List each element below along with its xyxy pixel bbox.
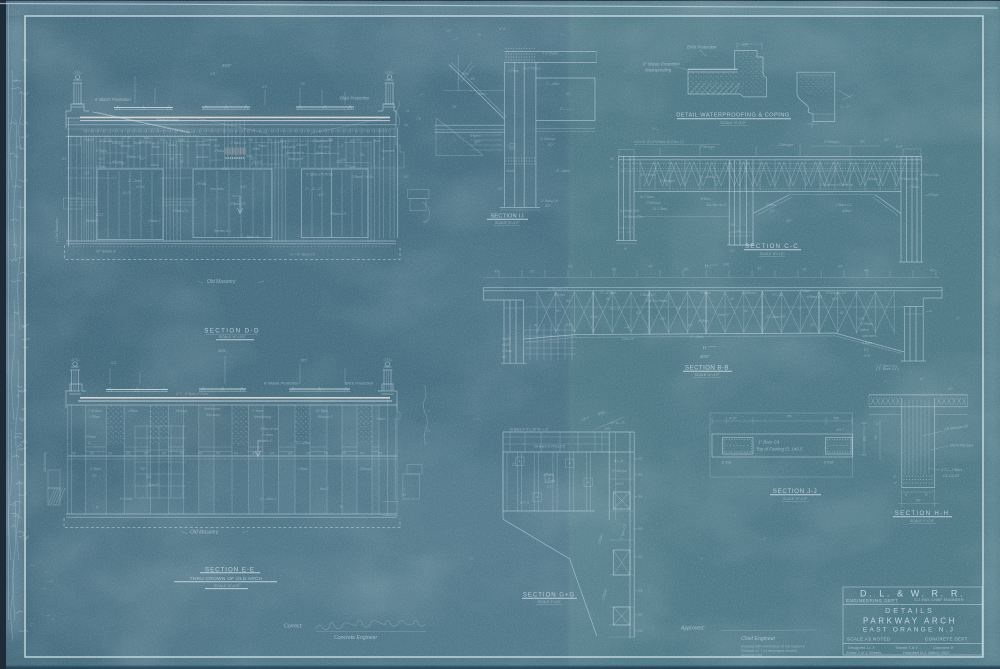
svg-text:2′0″: 2′0″ bbox=[741, 43, 749, 47]
svg-text:thru bolts: thru bolts bbox=[210, 187, 224, 191]
svg-text:6½: 6½ bbox=[470, 77, 475, 81]
svg-text:Sto-Wa-He-4′: Sto-Wa-He-4′ bbox=[706, 203, 727, 207]
svg-text:1″Bars C2: 1″Bars C2 bbox=[640, 293, 655, 297]
svg-text:3′6: 3′6 bbox=[648, 265, 653, 269]
svg-text:thru bolts: thru bolts bbox=[206, 413, 220, 417]
svg-text:EAST ORANGE N.J: EAST ORANGE N.J bbox=[863, 627, 955, 634]
svg-text:6′0: 6′0 bbox=[306, 452, 310, 456]
svg-text:2x: 2x bbox=[405, 109, 410, 113]
svg-text:6′0: 6′0 bbox=[688, 323, 693, 327]
svg-text:5″Bars-C6: 5″Bars-C6 bbox=[330, 212, 346, 216]
svg-text:14′-7 Bars: 14′-7 Bars bbox=[652, 207, 668, 211]
svg-text:Old Masonry: Old Masonry bbox=[207, 279, 236, 285]
svg-text:2′6″dia: 2′6″dia bbox=[195, 182, 206, 186]
svg-text:Spacers: Spacers bbox=[382, 149, 395, 153]
svg-text:6′0: 6′0 bbox=[144, 452, 148, 456]
svg-text:SECTION G+G: SECTION G+G bbox=[523, 593, 575, 599]
svg-text:2″Stirrups-C3: 2″Stirrups-C3 bbox=[825, 291, 846, 295]
svg-text:Brick Protection: Brick Protection bbox=[345, 380, 374, 385]
svg-text:3′6: 3′6 bbox=[802, 268, 807, 272]
svg-text:at 4′0: at 4′0 bbox=[616, 482, 624, 486]
svg-text:1″Bars-C6: 1″Bars-C6 bbox=[172, 209, 188, 213]
svg-text:₤ 6x8 ⃾: ₤ 6x8 ⃾ bbox=[823, 461, 834, 465]
svg-text:4′6: 4′6 bbox=[864, 269, 869, 273]
svg-text:2″Plate: 2″Plate bbox=[507, 69, 519, 73]
svg-text:6′0: 6′0 bbox=[126, 452, 130, 456]
svg-text:8′6: 8′6 bbox=[612, 268, 617, 272]
svg-text:9′0: 9′0 bbox=[757, 267, 762, 271]
svg-text:↓: ↓ bbox=[404, 487, 406, 491]
svg-text:½″Bars: ½″Bars bbox=[698, 319, 709, 323]
svg-text:SCALE ½″=1′0″: SCALE ½″=1′0″ bbox=[219, 335, 246, 339]
svg-text:@6″: @6″ bbox=[474, 140, 481, 144]
svg-text:6′0: 6′0 bbox=[198, 452, 202, 456]
svg-text:5 spcs: 5 spcs bbox=[470, 134, 480, 138]
svg-text:6′0: 6′0 bbox=[502, 355, 507, 359]
svg-text:2′0: 2′0 bbox=[637, 457, 643, 461]
svg-text:1″Bars: 1″Bars bbox=[298, 467, 308, 471]
svg-text:4-1″ Plates: 4-1″ Plates bbox=[524, 67, 541, 71]
svg-text:½: ½ bbox=[624, 247, 627, 251]
svg-text:Stirrups 6″: Stirrups 6″ bbox=[288, 157, 305, 161]
svg-text:½: ½ bbox=[700, 557, 703, 561]
svg-text:1″— Bars: 1″— Bars bbox=[296, 441, 311, 445]
svg-text:6′0: 6′0 bbox=[948, 387, 952, 391]
svg-text:45′6: 45′6 bbox=[218, 348, 226, 353]
svg-text:62: 62 bbox=[566, 299, 570, 303]
svg-text:6′0: 6′0 bbox=[216, 452, 220, 456]
svg-text:1′Bars-C: 1′Bars-C bbox=[148, 219, 162, 223]
svg-text:↓: ↓ bbox=[430, 117, 432, 121]
svg-text:Blast Protection: Blast Protection bbox=[340, 96, 370, 101]
svg-text:C2: C2 bbox=[770, 209, 774, 213]
svg-text:2-6ctrs: 2-6ctrs bbox=[544, 479, 556, 483]
svg-text:¾x: ¾x bbox=[404, 123, 409, 127]
svg-text:1″—1″Bars: 1″—1″Bars bbox=[600, 291, 617, 295]
svg-text:½″ Studs A: ½″ Studs A bbox=[96, 249, 116, 254]
svg-text:G.J. RAY, CHIEF ENGINEER: G.J. RAY, CHIEF ENGINEER bbox=[914, 598, 964, 602]
svg-text:5′6: 5′6 bbox=[638, 589, 643, 593]
svg-text:4′-0″: 4′-0″ bbox=[240, 185, 248, 189]
svg-text:2′6: 2′6 bbox=[451, 105, 457, 109]
svg-text:3′6″: 3′6″ bbox=[140, 467, 146, 471]
svg-text:5′-8″x¾ Plates: 5′-8″x¾ Plates bbox=[646, 299, 668, 303]
svg-text:7″Bars: 7″Bars bbox=[346, 165, 356, 169]
svg-text:60: 60 bbox=[510, 145, 514, 149]
svg-text:4′6: 4′6 bbox=[494, 270, 499, 274]
svg-text:2 7/— 1″Bars: 2 7/— 1″Bars bbox=[940, 468, 962, 472]
svg-text:7′½: 7′½ bbox=[416, 117, 421, 121]
svg-text:—3″: —3″ bbox=[759, 537, 767, 541]
svg-text:4′0″: 4′0″ bbox=[318, 193, 324, 197]
svg-text:3′: 3′ bbox=[382, 157, 385, 161]
svg-text:1″ Bars: 1″ Bars bbox=[252, 409, 263, 413]
svg-text:5′0″: 5′0″ bbox=[250, 157, 256, 161]
svg-text:Correct:: Correct: bbox=[284, 624, 303, 630]
svg-text:H: H bbox=[703, 345, 706, 350]
svg-text:½″Bars C2: ½″Bars C2 bbox=[806, 295, 822, 299]
svg-text:6′0: 6′0 bbox=[360, 452, 364, 456]
svg-text:9′6: 9′6 bbox=[568, 265, 573, 269]
svg-text:2″Stirrups: 2″Stirrups bbox=[645, 201, 661, 205]
svg-text:5 Bars: 5 Bars bbox=[862, 341, 872, 345]
svg-text:5′-0″: 5′-0″ bbox=[222, 167, 230, 171]
svg-text:8′0: 8′0 bbox=[684, 268, 689, 272]
svg-text:2′WX8: 2′WX8 bbox=[83, 138, 94, 142]
svg-text:3′6: 3′6 bbox=[360, 153, 365, 157]
svg-text:Stirrups: Stirrups bbox=[176, 409, 188, 413]
svg-text:½″Stirrups: ½″Stirrups bbox=[612, 469, 627, 473]
svg-text:6′2: 6′2 bbox=[404, 175, 409, 179]
svg-text:1′Bars: 1′Bars bbox=[376, 417, 386, 421]
svg-text:16′: 16′ bbox=[736, 229, 741, 233]
svg-text:7′ Ø Bars: 7′ Ø Bars bbox=[88, 409, 102, 413]
svg-text:6′0: 6′0 bbox=[270, 452, 274, 456]
svg-text:2′0: 2′0 bbox=[497, 187, 503, 191]
svg-text:62: 62 bbox=[730, 297, 734, 301]
svg-text:6′ Blasts Protection: 6′ Blasts Protection bbox=[95, 97, 131, 102]
svg-text:Revised 12-7-31 technique omit: Revised 12-7-31 technique omitted bbox=[741, 649, 798, 653]
svg-text:½″8: ½″8 bbox=[864, 354, 870, 358]
svg-text:6′0: 6′0 bbox=[108, 452, 112, 456]
svg-text:2x: 2x bbox=[426, 429, 431, 433]
svg-text:SCALE 1″=10′: SCALE 1″=10′ bbox=[538, 600, 561, 604]
svg-text:Class: Class bbox=[168, 143, 176, 147]
svg-text:1′6 ¾—⅓: 1′6 ¾—⅓ bbox=[610, 421, 625, 425]
svg-text:SCALE 1″=1′0″: SCALE 1″=1′0″ bbox=[910, 519, 935, 523]
svg-text:6′0: 6′0 bbox=[324, 452, 328, 456]
svg-text:3-1″ Plates: 3-1″ Plates bbox=[542, 52, 559, 56]
svg-text:½″Bars-C2a: ½″Bars-C2a bbox=[624, 215, 642, 219]
svg-text:6x4x1: 6x4x1 bbox=[506, 169, 515, 173]
svg-text:(bars C7): (bars C7) bbox=[316, 151, 330, 155]
svg-text:62: 62 bbox=[840, 311, 844, 315]
svg-text:4′0 ctrs: 4′0 ctrs bbox=[318, 145, 329, 149]
svg-text:x: x bbox=[427, 409, 430, 413]
svg-text:SECTION C-C: SECTION C-C bbox=[745, 243, 799, 250]
svg-text:Bolts: Bolts bbox=[134, 141, 141, 145]
svg-text:2″Stringer: 2″Stringer bbox=[699, 145, 716, 149]
svg-text:Old Masonry: Old Masonry bbox=[43, 452, 47, 473]
svg-text:—½″Bars: —½″Bars bbox=[923, 193, 939, 197]
svg-text:DETAILS: DETAILS bbox=[885, 608, 935, 615]
svg-text:6″ F... 8′ Bars 4′ 2′ctrs: 6″ F... 8′ Bars 4′ 2′ctrs bbox=[176, 392, 209, 396]
svg-text:5′0: 5′0 bbox=[638, 527, 643, 531]
svg-text:6′0: 6′0 bbox=[288, 452, 292, 456]
svg-text:2′6: 2′6 bbox=[915, 499, 922, 503]
svg-text:16′2: 16′2 bbox=[300, 359, 308, 363]
svg-text:15′2″: 15′2″ bbox=[98, 157, 106, 161]
svg-text:a: a bbox=[534, 323, 536, 327]
svg-text:1″Bars: 1″Bars bbox=[128, 409, 138, 413]
svg-text:40′6″: 40′6″ bbox=[700, 354, 710, 359]
svg-text:( 1″ Bars C4 ): ( 1″ Bars C4 ) bbox=[876, 367, 900, 371]
svg-text:Chief Engineer: Chief Engineer bbox=[741, 636, 776, 642]
svg-text:Hoboken N.J. March 1922: Hoboken N.J. March 1922 bbox=[903, 650, 950, 655]
svg-text:6″ Waste Protection: 6″ Waste Protection bbox=[643, 62, 680, 67]
svg-text:2″Stirrups C3: 2″Stirrups C3 bbox=[547, 287, 568, 291]
svg-text:10″—: 10″— bbox=[730, 223, 739, 227]
svg-text:↓: ↓ bbox=[482, 297, 484, 301]
svg-text:3″Bars: 3″Bars bbox=[86, 435, 96, 439]
svg-text:thru C: thru C bbox=[320, 487, 330, 491]
svg-text:¾x8′6: ¾x8′6 bbox=[502, 337, 511, 341]
svg-text:both ends: both ends bbox=[862, 334, 877, 338]
svg-text:½″8: ½″8 bbox=[214, 144, 220, 148]
svg-text:6-1″ Bars: 6-1″ Bars bbox=[640, 195, 654, 199]
svg-text:½″Bars: ½″Bars bbox=[700, 197, 711, 201]
svg-text:1″Bars: 1″Bars bbox=[90, 415, 100, 419]
svg-text:7″8: 7″8 bbox=[328, 138, 333, 142]
svg-text:1″—Bars: 1″—Bars bbox=[546, 82, 560, 86]
svg-text:G: G bbox=[403, 493, 406, 497]
svg-text:4′x3′6: 4′x3′6 bbox=[136, 185, 145, 189]
svg-text:2′0: 2′0 bbox=[169, 157, 175, 161]
svg-text:C1-C2-C3: C1-C2-C3 bbox=[943, 474, 959, 478]
svg-text:Anchors: Anchors bbox=[195, 155, 209, 159]
svg-text:SCALE AS NOTED: SCALE AS NOTED bbox=[847, 637, 890, 642]
svg-text:1″—: 1″— bbox=[560, 33, 567, 37]
svg-text:Bars: Bars bbox=[144, 136, 151, 140]
svg-text:6′2: 6′2 bbox=[864, 348, 869, 352]
svg-text:SECTION B-B: SECTION B-B bbox=[685, 365, 729, 372]
svg-text:4′-3″: 4′-3″ bbox=[729, 417, 737, 421]
svg-text:SECTION H-H: SECTION H-H bbox=[895, 510, 950, 517]
svg-text:6′ Waste Protection: 6′ Waste Protection bbox=[264, 380, 299, 385]
svg-text:¾: ¾ bbox=[186, 144, 189, 148]
svg-text:¾: ¾ bbox=[876, 422, 879, 426]
svg-text:Class B: Class B bbox=[296, 143, 308, 147]
svg-text:3′0: 3′0 bbox=[638, 473, 643, 477]
svg-text:Revised 1/30: Revised 1/30 bbox=[741, 654, 762, 658]
svg-text:Milled: Milled bbox=[860, 328, 869, 332]
svg-text:1″Bars-C2: 1″Bars-C2 bbox=[836, 203, 852, 207]
svg-text:5′Bars 4′ctrs: 5′Bars 4′ctrs bbox=[260, 427, 279, 431]
svg-text:1″—Bars C: 1″—Bars C bbox=[260, 497, 277, 501]
svg-text:DETAIL WATERPROOFING & COPING: DETAIL WATERPROOFING & COPING bbox=[676, 113, 790, 119]
svg-text:—A: —A bbox=[117, 162, 123, 166]
svg-text:1″Stirrups: 1″Stirrups bbox=[824, 140, 839, 144]
svg-text:(dry wall): (dry wall) bbox=[282, 145, 296, 149]
svg-text:1″—7″: 1″—7″ bbox=[840, 105, 850, 109]
svg-text:6′0: 6′0 bbox=[342, 452, 346, 456]
svg-text:4′0″: 4′0″ bbox=[786, 219, 792, 223]
svg-text:2′0: 2′0 bbox=[729, 249, 735, 253]
svg-text:½″—62: ½″—62 bbox=[772, 293, 783, 297]
svg-text:⅓″ Bars: ⅓″ Bars bbox=[316, 409, 328, 413]
svg-text:C7: C7 bbox=[547, 485, 551, 489]
svg-text:ENGINEERING DEPT: ENGINEERING DEPT bbox=[846, 598, 898, 603]
svg-text:4′—0: 4′—0 bbox=[614, 458, 624, 463]
svg-text:6′0: 6′0 bbox=[180, 452, 184, 456]
svg-text:¾″ 6′: ¾″ 6′ bbox=[498, 27, 506, 31]
svg-text:5′0: 5′0 bbox=[638, 555, 643, 559]
svg-text:1″ Bars C4: 1″ Bars C4 bbox=[230, 141, 246, 145]
svg-text:—A: —A bbox=[925, 309, 932, 313]
svg-text:Web ½″: Web ½″ bbox=[718, 313, 731, 317]
svg-text:1″ Bars-C4: 1″ Bars-C4 bbox=[758, 440, 780, 445]
svg-text:60: 60 bbox=[610, 157, 614, 161]
svg-text:SCALE 3″=1′0″: SCALE 3″=1′0″ bbox=[720, 121, 746, 125]
svg-text:2″ Bars: 2″ Bars bbox=[95, 149, 107, 153]
svg-text:Rivets: Rivets bbox=[258, 144, 267, 148]
svg-text:Ø½ 7: Ø½ 7 bbox=[835, 428, 844, 432]
svg-text:½″8: ½″8 bbox=[858, 317, 864, 321]
svg-text:Anchored to: Anchored to bbox=[285, 151, 304, 155]
svg-text:Crib-C4: Crib-C4 bbox=[622, 337, 634, 341]
svg-text:Class: Class bbox=[150, 163, 159, 167]
svg-text:2″Bars: 2″Bars bbox=[213, 149, 224, 153]
svg-text:½″8: ½″8 bbox=[340, 158, 346, 162]
svg-text:ƒ Old Masonry: ƒ Old Masonry bbox=[55, 217, 59, 243]
svg-text:½ Studs: ½ Studs bbox=[120, 497, 133, 501]
svg-text:4″—Bars: 4″—Bars bbox=[556, 169, 570, 173]
svg-text:½: ½ bbox=[152, 142, 155, 146]
svg-text:6′2″: 6′2″ bbox=[140, 157, 146, 161]
svg-text:SCALE ½″=1′0″: SCALE ½″=1′0″ bbox=[782, 497, 808, 501]
svg-text:⅓: ⅓ bbox=[78, 192, 81, 196]
svg-text:2′6″: 2′6″ bbox=[445, 29, 452, 33]
svg-text:¾″Plates: ¾″Plates bbox=[860, 322, 874, 326]
svg-text:1″Bars: 1″Bars bbox=[476, 92, 486, 96]
svg-text:SECTION D-D: SECTION D-D bbox=[204, 328, 260, 335]
svg-text:4′6″: 4′6″ bbox=[566, 323, 572, 327]
svg-text:↓: ↓ bbox=[652, 577, 654, 581]
svg-text:4′0: 4′0 bbox=[884, 138, 889, 142]
svg-text:8″Bars-C6: 8″Bars-C6 bbox=[230, 202, 246, 206]
svg-text:6′0″: 6′0″ bbox=[548, 143, 554, 147]
svg-text:4′Bars: 4′Bars bbox=[842, 209, 852, 213]
svg-text:62: 62 bbox=[606, 297, 610, 301]
svg-text:↓: ↓ bbox=[606, 119, 608, 123]
svg-text:62: 62 bbox=[636, 311, 640, 315]
svg-text:—: — bbox=[939, 557, 944, 561]
svg-text:2″Stirrups: 2″Stirrups bbox=[741, 291, 757, 295]
svg-text:Stirrups C: Stirrups C bbox=[318, 415, 334, 419]
svg-text:6′0 ctrs: 6′0 ctrs bbox=[554, 293, 565, 297]
svg-text:2″———: 2″——— bbox=[559, 107, 574, 111]
svg-text:1′6: 1′6 bbox=[810, 323, 815, 327]
svg-text:8′-0″: 8′-0″ bbox=[896, 145, 904, 149]
svg-text:Waterproofing: Waterproofing bbox=[645, 68, 672, 73]
svg-text:6′0: 6′0 bbox=[378, 452, 382, 456]
svg-text:Slab 8″: Slab 8″ bbox=[148, 483, 160, 487]
svg-text:3″Bars C-6 4′c: 3″Bars C-6 4′c bbox=[352, 175, 374, 179]
svg-text:1″—Bars: 1″—Bars bbox=[690, 335, 704, 339]
svg-text:⅓′: ⅓′ bbox=[798, 307, 802, 311]
svg-text:⅓: ⅓ bbox=[610, 165, 613, 169]
svg-text:5′0: 5′0 bbox=[556, 309, 561, 313]
svg-text:16 Bars 5′-6 x 10′-6 — C: 16 Bars 5′-6 x 10′-6 — C bbox=[509, 428, 549, 432]
svg-text:3″ Bars-C6 4′ctrs: 3″ Bars-C6 4′ctrs bbox=[306, 173, 333, 177]
svg-text:6′2: 6′2 bbox=[85, 171, 90, 175]
svg-text:½″—2: ½″—2 bbox=[610, 307, 619, 311]
svg-text:Concrete: Concrete bbox=[196, 143, 210, 147]
svg-text:Top of Footing El. 140.5: Top of Footing El. 140.5 bbox=[756, 447, 803, 452]
svg-text:½: ½ bbox=[478, 33, 481, 37]
svg-text:+: + bbox=[470, 89, 472, 93]
svg-text:6′0: 6′0 bbox=[860, 140, 865, 144]
svg-text:Brick Protection: Brick Protection bbox=[687, 45, 717, 50]
svg-text:—A: —A bbox=[623, 325, 630, 329]
svg-text:26′0″: 26′0″ bbox=[603, 427, 612, 431]
svg-text:1″— 4′—0″: 1″— 4′—0″ bbox=[305, 187, 322, 191]
svg-text:1″Bars: 1″Bars bbox=[766, 203, 776, 207]
svg-text:6′0″: 6′0″ bbox=[780, 315, 786, 319]
svg-text:SECTION J-J: SECTION J-J bbox=[773, 488, 818, 495]
svg-text:7′: 7′ bbox=[884, 380, 887, 384]
svg-text:1″ Stirrups: 1″ Stirrups bbox=[540, 137, 556, 141]
svg-text:Revised with corrections of ol: Revised with corrections of old masonry bbox=[741, 645, 805, 649]
svg-text:1″Bars: 1″Bars bbox=[96, 165, 106, 169]
svg-text:3′0: 3′0 bbox=[146, 475, 151, 479]
svg-text:₤ 3x8 ⃾: ₤ 3x8 ⃾ bbox=[721, 461, 732, 465]
svg-text:CONCRETE DEPT: CONCRETE DEPT bbox=[925, 637, 968, 642]
svg-text:2′6: 2′6 bbox=[637, 629, 643, 633]
svg-text:Web: Web bbox=[178, 138, 185, 142]
svg-text:1″ Bars: 1″ Bars bbox=[90, 467, 101, 471]
svg-text:C6: C6 bbox=[92, 474, 96, 478]
svg-text:1″ Bars-C4: 1″ Bars-C4 bbox=[541, 199, 558, 203]
svg-text:1′6″: 1′6″ bbox=[660, 317, 666, 321]
svg-text:10′-0″: 10′-0″ bbox=[122, 191, 131, 195]
svg-text:½: ½ bbox=[920, 377, 923, 381]
svg-text:5′-0″: 5′-0″ bbox=[832, 297, 840, 301]
svg-text:Stirrups: Stirrups bbox=[112, 141, 123, 145]
svg-text:4-6″x21′-6″x1′½ Bars @ 2′ctrs-: 4-6″x21′-6″x1′½ Bars @ 2′ctrs-C1 bbox=[634, 140, 684, 144]
svg-text:5′0: 5′0 bbox=[838, 265, 843, 269]
svg-text:—7″Bars: —7″Bars bbox=[905, 185, 920, 189]
svg-text:½: ½ bbox=[470, 557, 473, 561]
svg-text:PARKWAY ARCH: PARKWAY ARCH bbox=[863, 617, 957, 626]
svg-text:Stirrups: Stirrups bbox=[360, 467, 372, 471]
svg-text:Approved:: Approved: bbox=[680, 626, 705, 632]
svg-text:1″Spacers 4′0 see det: 1″Spacers 4′0 see det bbox=[820, 183, 854, 187]
svg-text:—2: —2 bbox=[337, 144, 343, 148]
svg-text:SCALE ¾″=1′0″: SCALE ¾″=1′0″ bbox=[759, 252, 785, 256]
svg-text:7³ Bars: 7³ Bars bbox=[262, 433, 273, 437]
svg-text:½″Bars-C4a: ½″Bars-C4a bbox=[900, 177, 918, 181]
svg-text:2′2: 2′2 bbox=[863, 436, 867, 442]
svg-text:Rk′s: Rk′s bbox=[462, 72, 469, 76]
svg-text:4″Bars: 4″Bars bbox=[543, 473, 553, 477]
svg-text:Concrete: Concrete bbox=[204, 138, 217, 142]
svg-text:THRU CROWN OF OLD ARCH: THRU CROWN OF OLD ARCH bbox=[190, 576, 263, 582]
svg-text:SCALE ¼″=1′0″: SCALE ¼″=1′0″ bbox=[694, 373, 720, 377]
svg-text:⅓—½″ Bars-C2: ⅓—½″ Bars-C2 bbox=[290, 253, 315, 257]
svg-text:4′6: 4′6 bbox=[874, 435, 878, 440]
svg-text:3′0: 3′0 bbox=[530, 270, 535, 274]
svg-text:6′0: 6′0 bbox=[234, 452, 238, 456]
svg-text:6′0 1″Bars: 6′0 1″Bars bbox=[640, 173, 656, 177]
svg-text:1″—: 1″— bbox=[104, 136, 111, 140]
svg-text:Bars: Bars bbox=[374, 139, 381, 143]
svg-text:6′2: 6′2 bbox=[356, 138, 360, 142]
svg-text:6′2: 6′2 bbox=[62, 157, 67, 161]
svg-text:Micro-Rly bars: Micro-Rly bars bbox=[950, 444, 973, 448]
svg-text:x14′6: x14′6 bbox=[501, 343, 510, 347]
svg-text:SECTION I.I: SECTION I.I bbox=[490, 214, 524, 220]
svg-text:Reinforced: Reinforced bbox=[204, 407, 221, 411]
svg-text:H: H bbox=[705, 264, 708, 269]
svg-text:24′6: 24′6 bbox=[722, 263, 729, 267]
svg-text:—7″: —7″ bbox=[451, 37, 459, 41]
svg-text:3′0: 3′0 bbox=[638, 613, 643, 617]
svg-text:4′Bars: 4′Bars bbox=[868, 177, 878, 181]
svg-text:6-1′Bars 5′6c: 6-1′Bars 5′6c bbox=[620, 209, 640, 213]
svg-text:1″—Bars C2: 1″—Bars C2 bbox=[700, 175, 719, 179]
svg-text:↑: ↑ bbox=[906, 150, 908, 154]
